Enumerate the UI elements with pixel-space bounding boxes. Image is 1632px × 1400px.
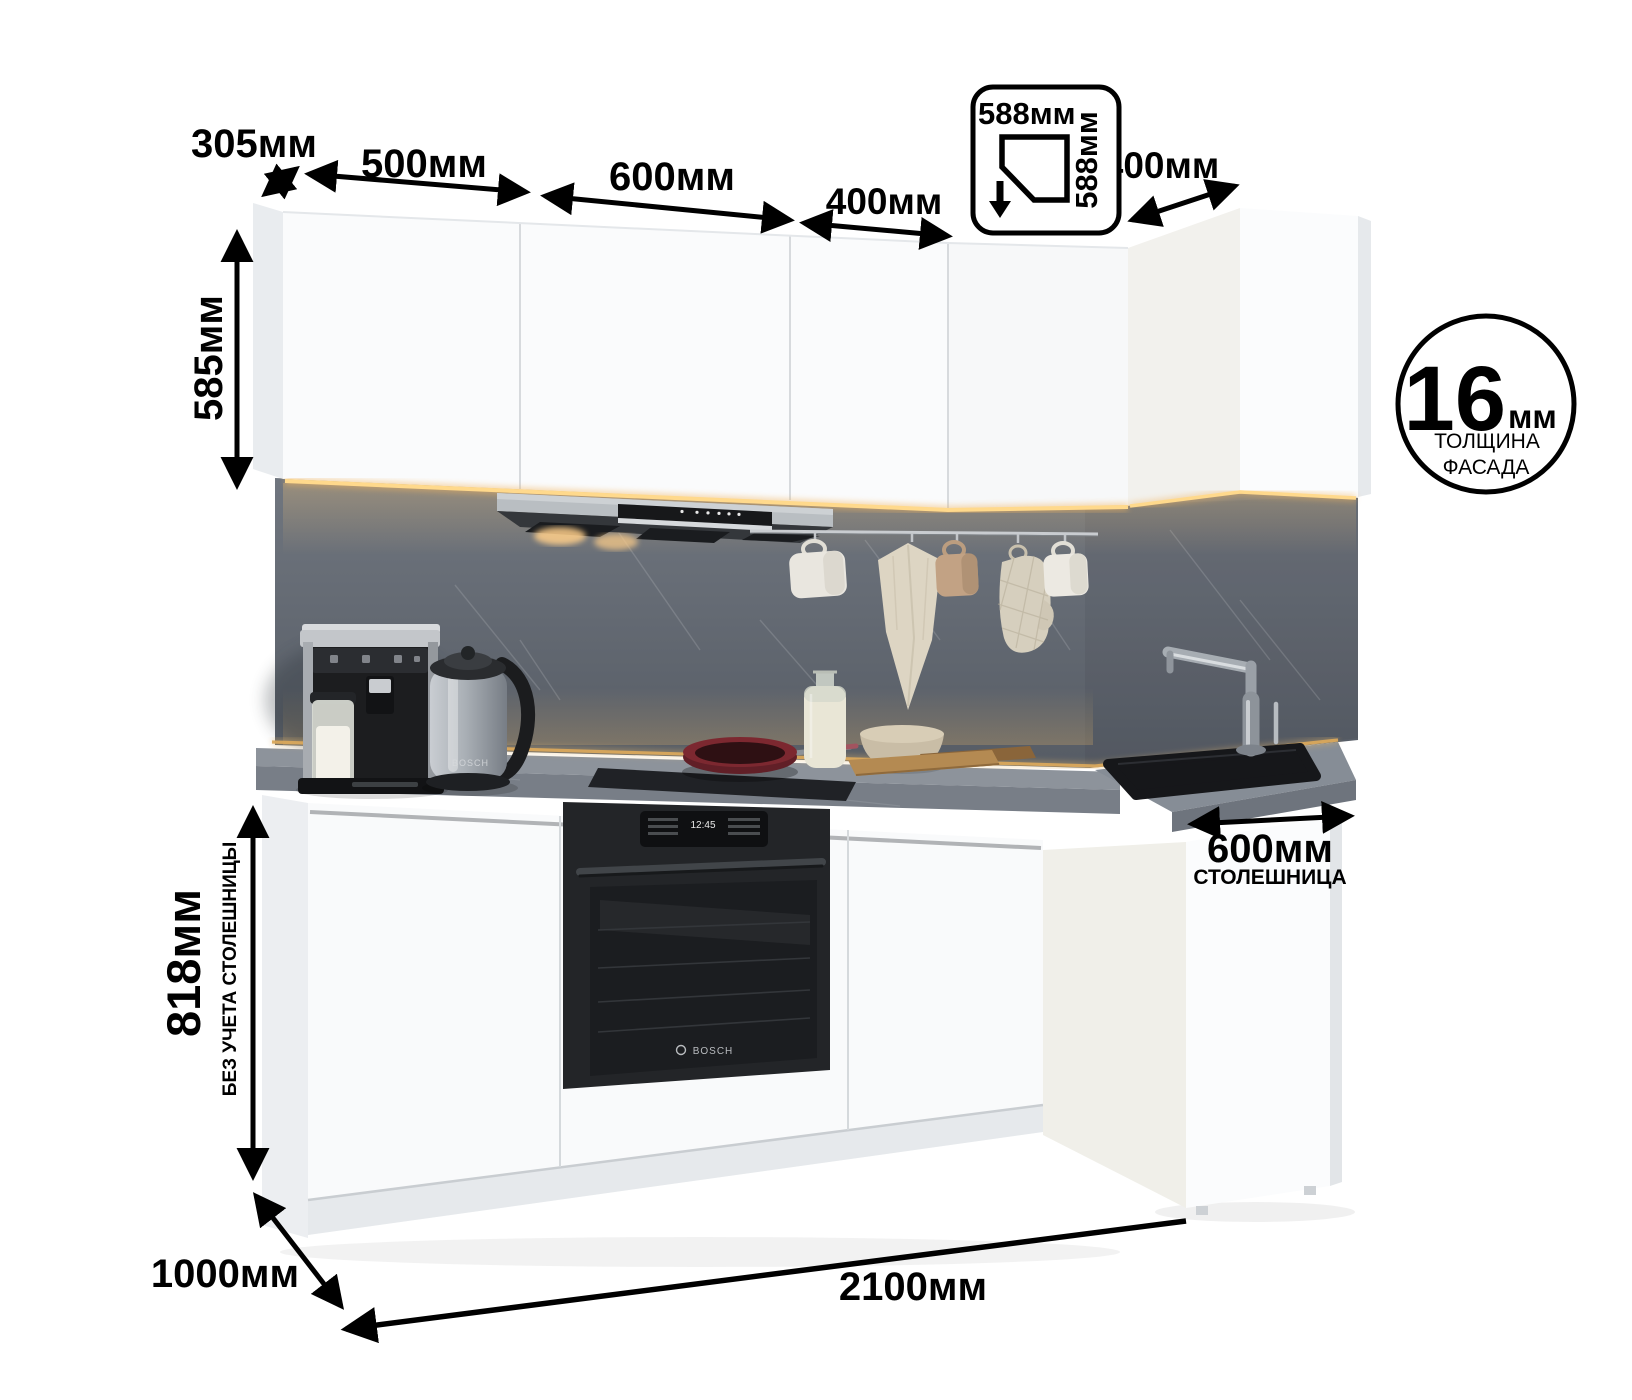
- corner-cabinet-badge: 588мм 588мм: [973, 87, 1119, 233]
- facade-thickness-badge: 16 мм ТОЛЩИНА ФАСАДА: [1398, 316, 1574, 492]
- dim-label-2100: 2100мм: [839, 1265, 987, 1309]
- wall-cabinet-return-front: [1240, 208, 1358, 497]
- corner-depth-label: 588мм: [1069, 111, 1104, 209]
- wall-cabinet-return-side: [1358, 216, 1371, 497]
- dim-label-305: 305мм: [191, 122, 317, 166]
- oven-clock: 12:45: [690, 820, 715, 831]
- dim-note-818: БЕЗ УЧЕТА СТОЛЕШНИЦЫ: [220, 842, 241, 1096]
- kitchen-scene: BOSCH: [0, 0, 1632, 1400]
- corner-width-label: 588мм: [978, 96, 1076, 131]
- oven-brand-label: BOSCH: [693, 1046, 734, 1057]
- wall-cabinet-front-run: [283, 212, 948, 508]
- facade-note-2: ФАСАДА: [1443, 456, 1530, 479]
- cabinet-foot: [1196, 1206, 1208, 1215]
- dim-label-400-top: 400мм: [826, 181, 942, 222]
- dim-label-818: 818мм: [157, 889, 210, 1037]
- built-in-oven: 12:45 BOSCH: [563, 802, 830, 1089]
- dim-label-500: 500мм: [361, 142, 487, 186]
- wall-cabinets: [253, 203, 1371, 510]
- wall-cabinet-corner-front: [948, 243, 1128, 508]
- dim-label-585: 585мм: [187, 295, 231, 421]
- dim-label-1000: 1000мм: [151, 1252, 299, 1296]
- kitchen-product-diagram: BOSCH: [0, 0, 1632, 1400]
- kettle-brand-label: BOSCH: [452, 758, 489, 768]
- dim-label-600-counter: 600мм: [1207, 827, 1333, 871]
- dim-arrow-600: [545, 196, 790, 220]
- dim-note-counter: СТОЛЕШНИЦА: [1193, 866, 1346, 889]
- dim-arrow-400-top: [804, 223, 948, 236]
- wall-cabinet-side-panel: [253, 203, 283, 479]
- dim-label-600: 600мм: [609, 155, 735, 199]
- dim-arrow-400-right: [1132, 186, 1235, 220]
- coffee-machine: [296, 624, 448, 799]
- dim-arrow-305: [265, 169, 296, 194]
- wall-cabinet-corner-angled-face: [1128, 208, 1240, 505]
- base-side-panel: [262, 795, 308, 1238]
- facade-note-1: ТОЛЩИНА: [1434, 430, 1540, 453]
- base-return-side: [1043, 842, 1186, 1208]
- cabinet-foot: [1304, 1186, 1316, 1195]
- milk-bottle: [804, 672, 846, 768]
